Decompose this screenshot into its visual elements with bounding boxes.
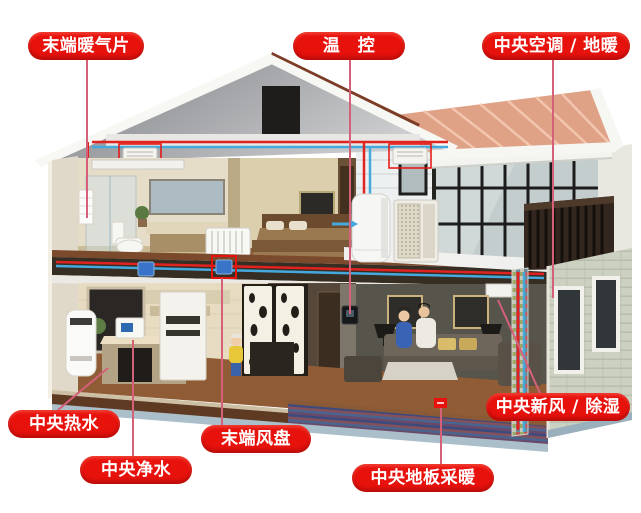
console-table — [250, 342, 294, 376]
hot-water-buffer-tank — [352, 194, 390, 262]
callout-central-hot-water: 中央热水 — [8, 410, 120, 438]
plant — [135, 206, 149, 220]
exterior-window — [556, 288, 582, 372]
refrigerator — [160, 292, 206, 380]
child-figure — [229, 334, 243, 376]
callout-central-ac-floor-heating: 中央空调 / 地暖 — [482, 32, 630, 60]
ceiling-diffuser — [92, 160, 184, 169]
callout-central-floor-heating: 中央地板采暖 — [352, 464, 494, 492]
callout-terminal-radiator: 末端暖气片 — [28, 32, 144, 60]
ceiling-fan-coil-unit — [389, 144, 431, 168]
callout-thermostat: 温 控 — [293, 32, 405, 60]
second-floor — [78, 158, 356, 262]
attic-door — [262, 86, 300, 142]
bed — [252, 214, 354, 258]
exterior-window — [594, 278, 618, 350]
floor-heating-marker — [434, 398, 447, 408]
callout-central-fresh-air-dehumidify: 中央新风 / 除湿 — [486, 393, 630, 421]
oven — [118, 348, 152, 382]
wall-art — [454, 296, 488, 328]
heat-pump-outdoor-unit — [394, 200, 438, 262]
callout-terminal-fan-coil: 末端风盘 — [201, 425, 311, 453]
fan-coil-unit — [216, 260, 232, 274]
hallway-door — [318, 292, 342, 376]
water-purifier — [116, 318, 144, 338]
hvac-house-cutaway-diagram: 末端暖气片 温 控 中央空调 / 地暖 中央热水 中央净水 末端风盘 中央地板采… — [0, 0, 641, 513]
bathroom-mirror — [150, 180, 224, 214]
hot-water-tank — [66, 310, 96, 376]
fresh-air-vent — [486, 284, 514, 297]
coffee-table — [382, 362, 458, 380]
callout-central-water-purification: 中央净水 — [80, 456, 192, 484]
circulation-pump — [138, 262, 154, 276]
